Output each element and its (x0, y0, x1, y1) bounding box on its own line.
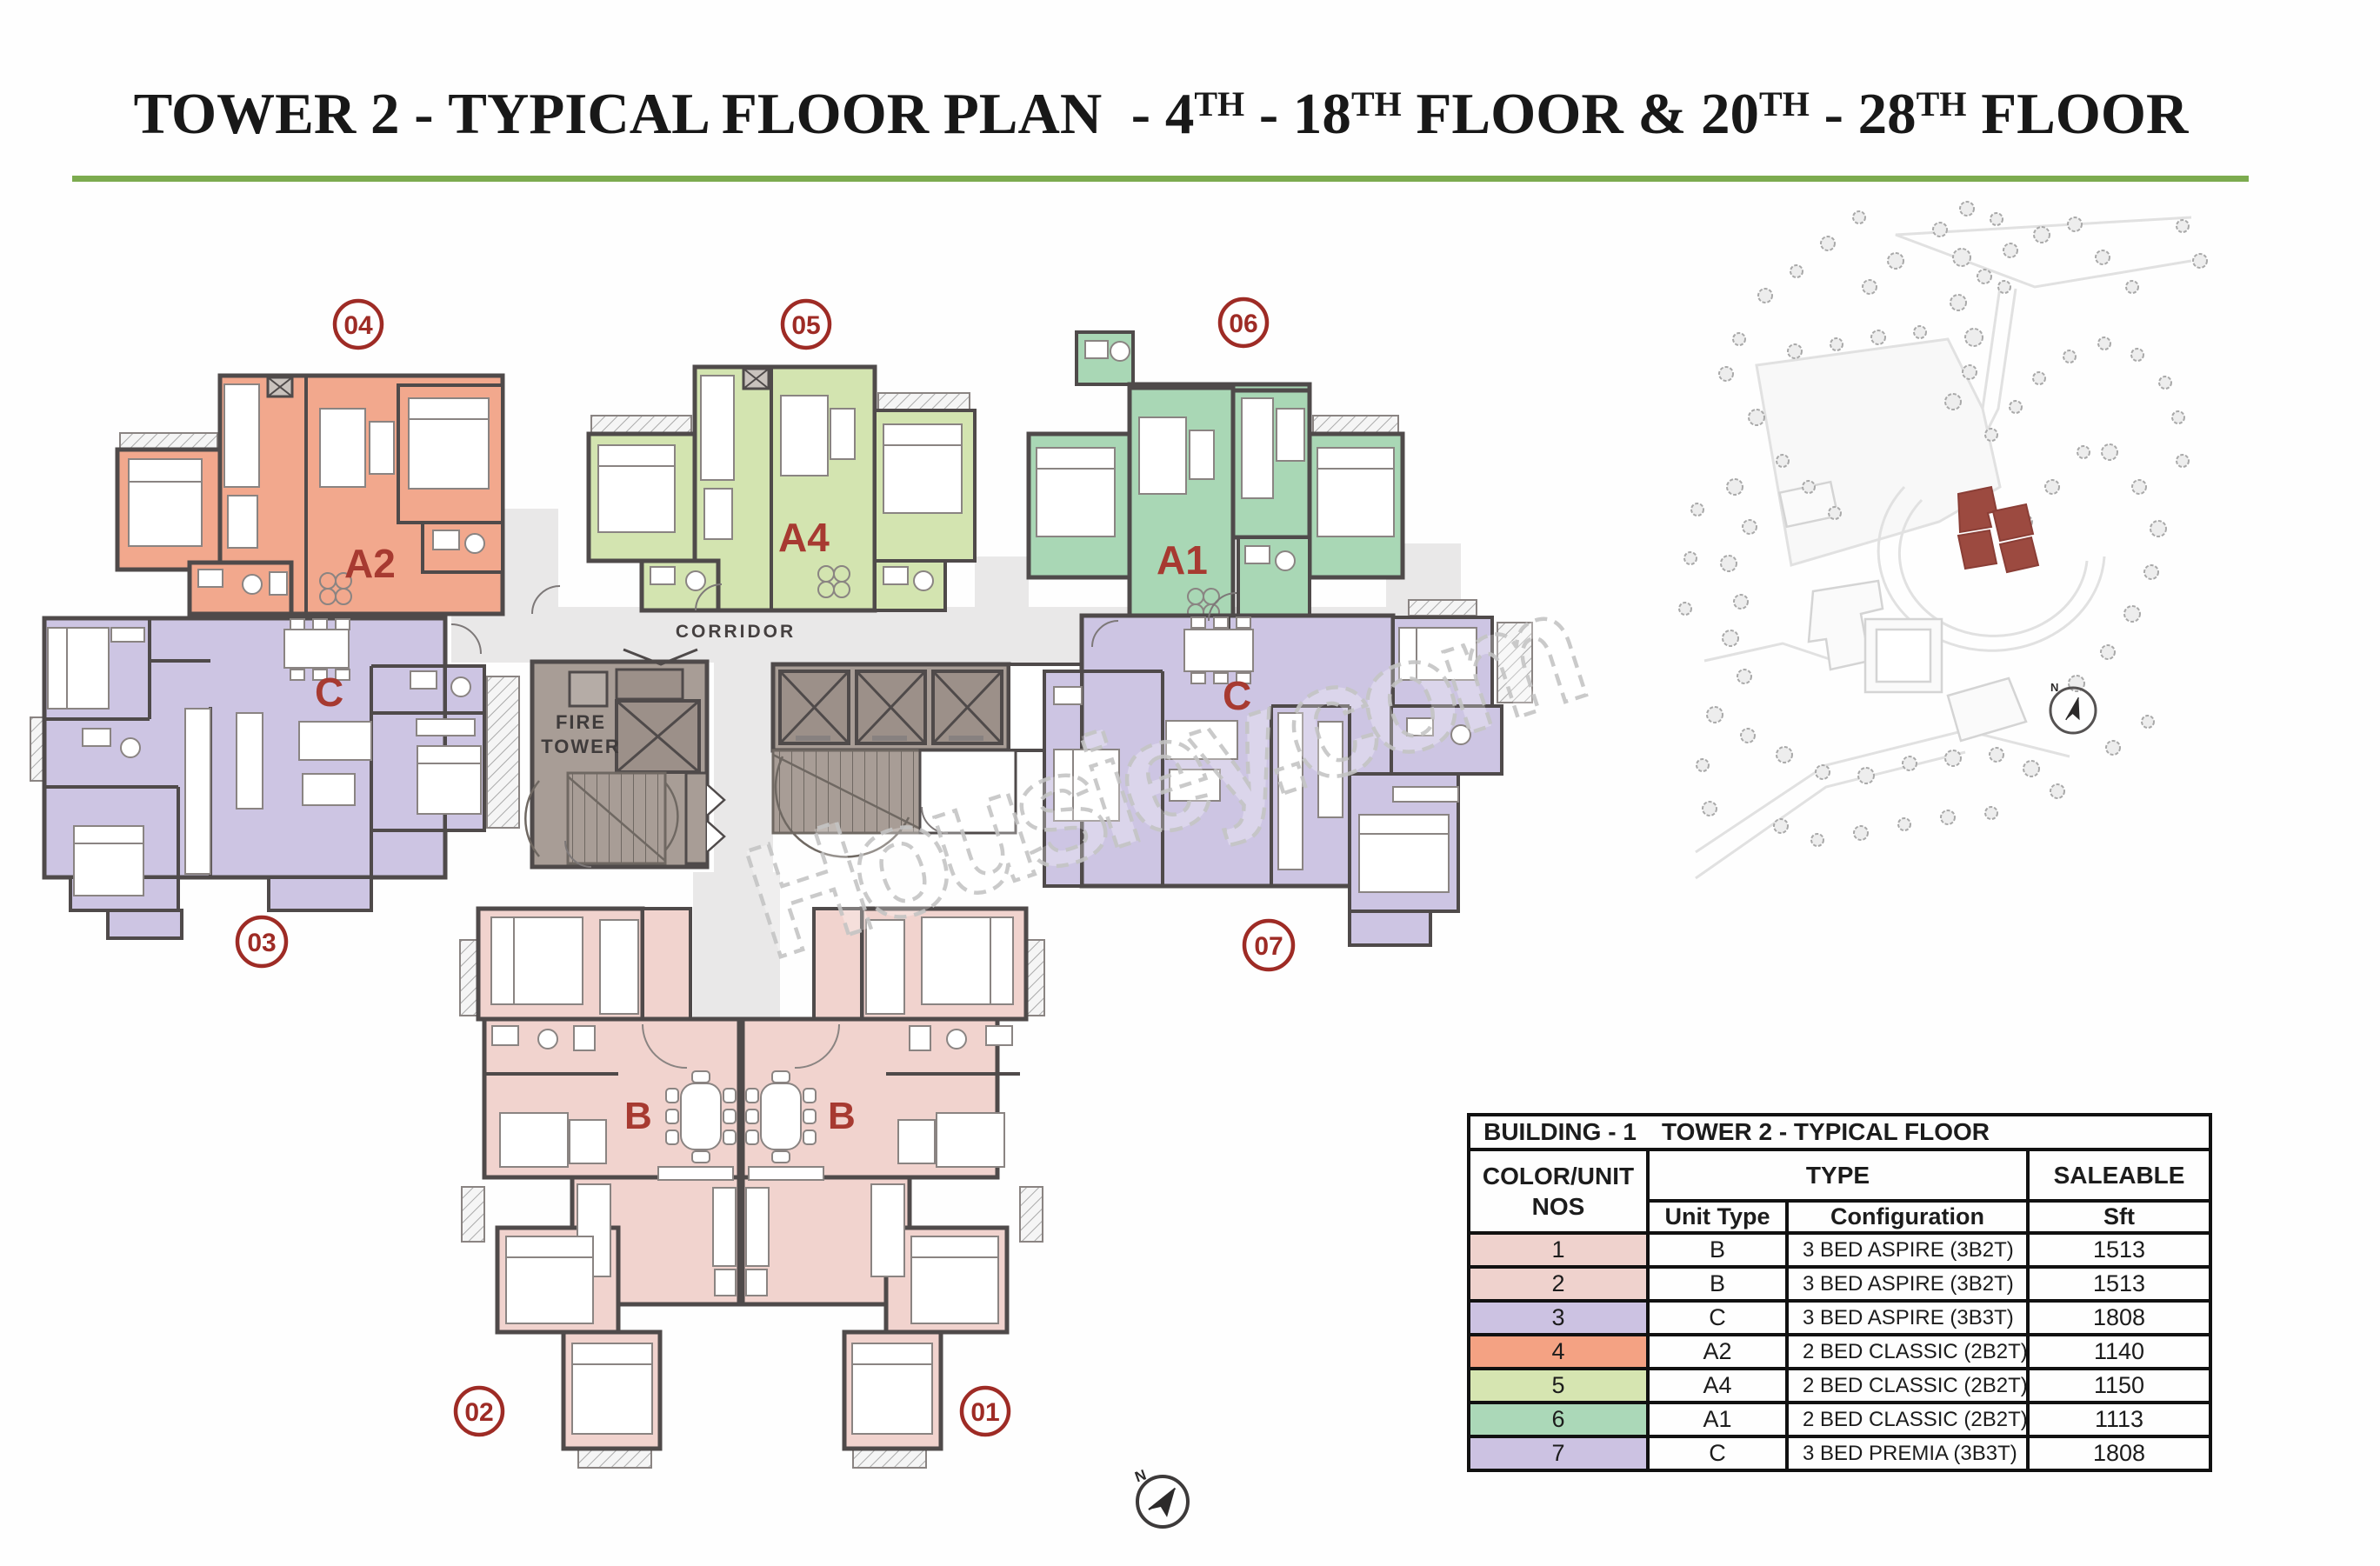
svg-text:03: 03 (247, 929, 276, 957)
svg-text:TOWER: TOWER (541, 736, 620, 757)
svg-text:06: 06 (1229, 310, 1257, 338)
svg-text:N: N (1133, 1467, 1149, 1486)
svg-text:B: B (624, 1095, 652, 1137)
svg-text:01: 01 (970, 1398, 999, 1427)
svg-text:B: B (828, 1095, 856, 1137)
svg-text:A4: A4 (778, 515, 830, 560)
svg-text:C: C (315, 670, 343, 715)
svg-text:A2: A2 (344, 541, 396, 586)
svg-text:N: N (2050, 681, 2058, 694)
svg-text:02: 02 (464, 1398, 493, 1427)
svg-text:CORRIDOR: CORRIDOR (676, 622, 796, 642)
svg-text:04: 04 (343, 311, 373, 340)
svg-text:A1: A1 (1157, 537, 1208, 583)
svg-text:FIRE: FIRE (556, 711, 606, 733)
svg-text:07: 07 (1254, 932, 1283, 961)
svg-text:05: 05 (791, 311, 820, 340)
